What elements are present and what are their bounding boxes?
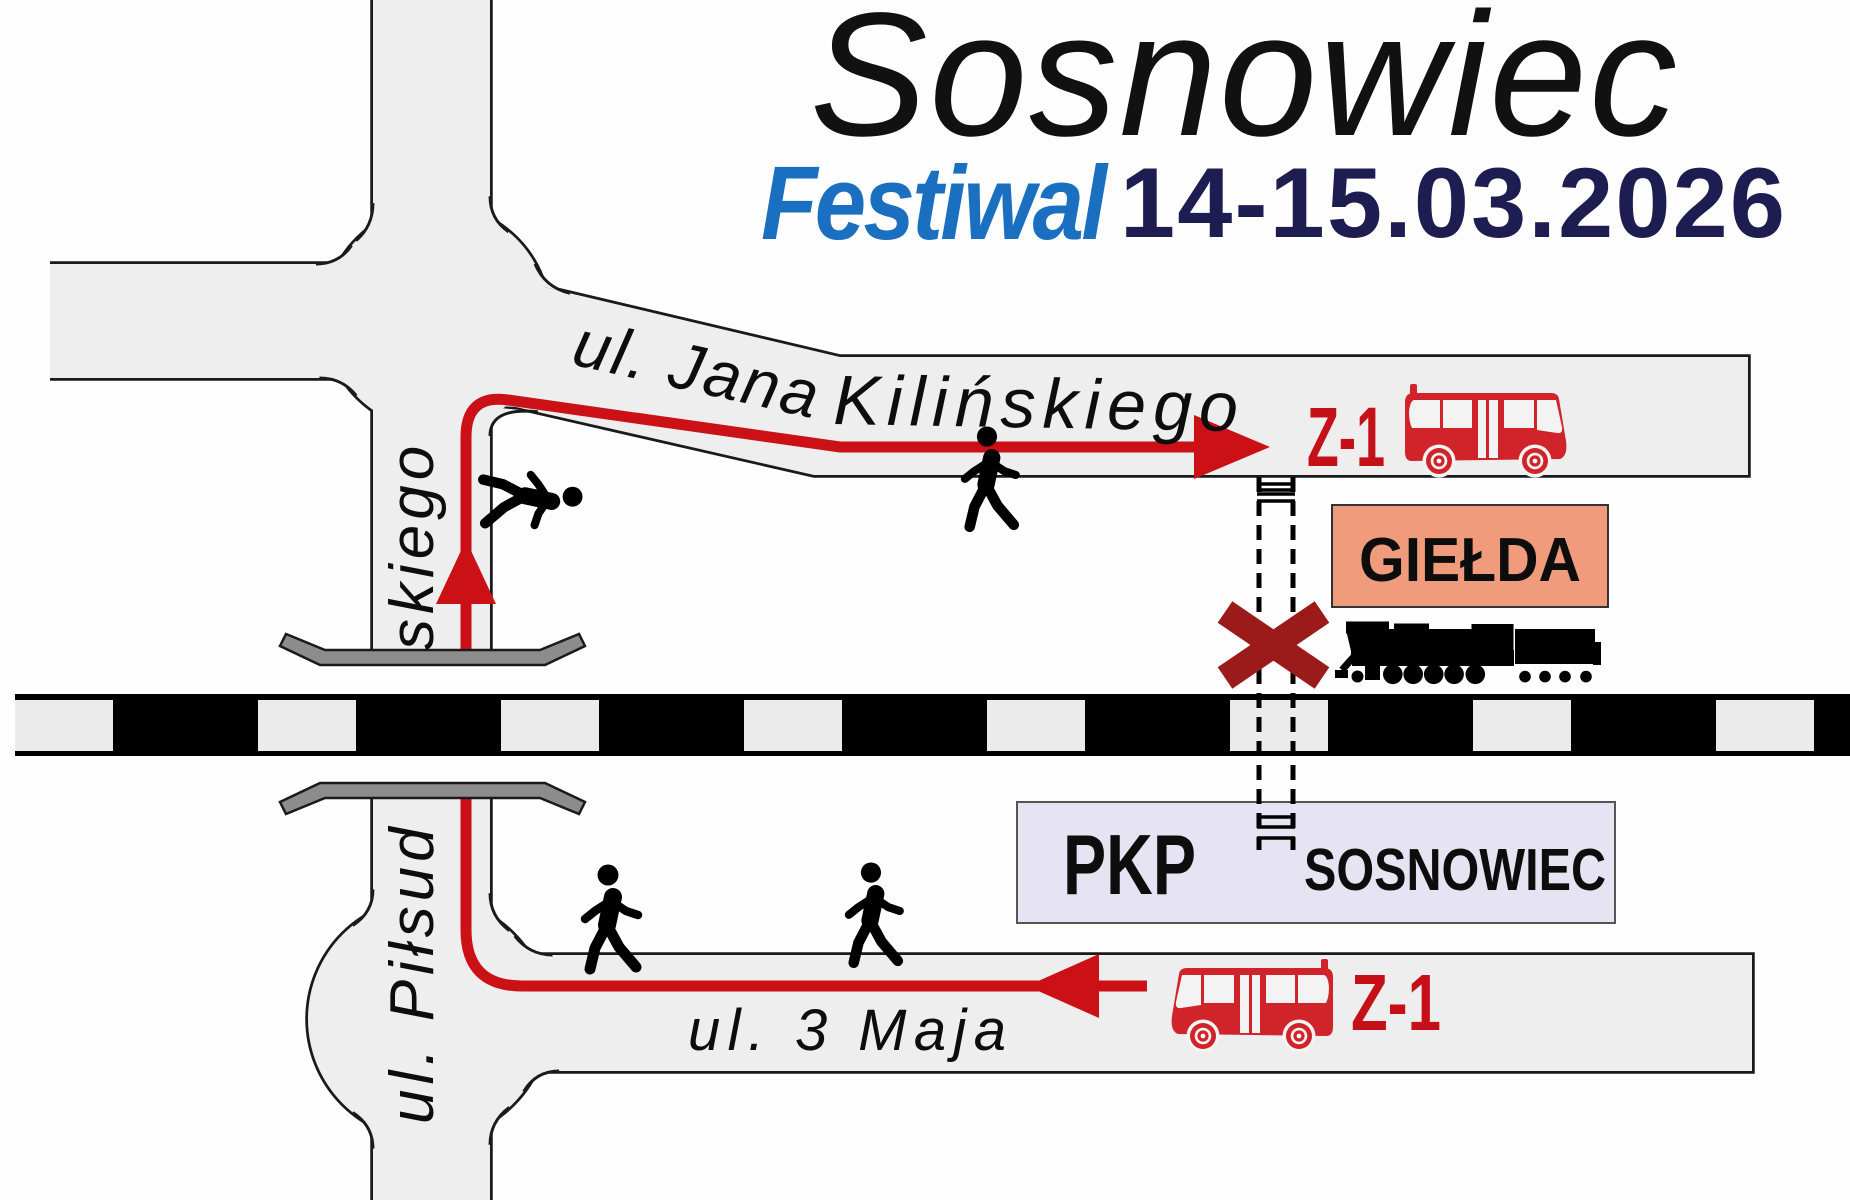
svg-text:Z-1: Z-1 <box>1307 390 1385 484</box>
svg-text:SOSNOWIEC: SOSNOWIEC <box>1304 837 1606 903</box>
svg-text:Z-1: Z-1 <box>1351 958 1441 1047</box>
svg-text:Kilińskiego: Kilińskiego <box>833 361 1246 446</box>
svg-text:Festiwal: Festiwal <box>761 143 1109 261</box>
svg-text:ul. Piłsud: ul. Piłsud <box>378 822 447 1124</box>
svg-text:skiego: skiego <box>378 441 447 650</box>
svg-text:ul. 3 Maja: ul. 3 Maja <box>688 998 1013 1063</box>
svg-text:14-15.03.2026: 14-15.03.2026 <box>1120 147 1787 258</box>
svg-text:GIEŁDA: GIEŁDA <box>1359 526 1581 595</box>
svg-text:PKP: PKP <box>1063 818 1196 913</box>
